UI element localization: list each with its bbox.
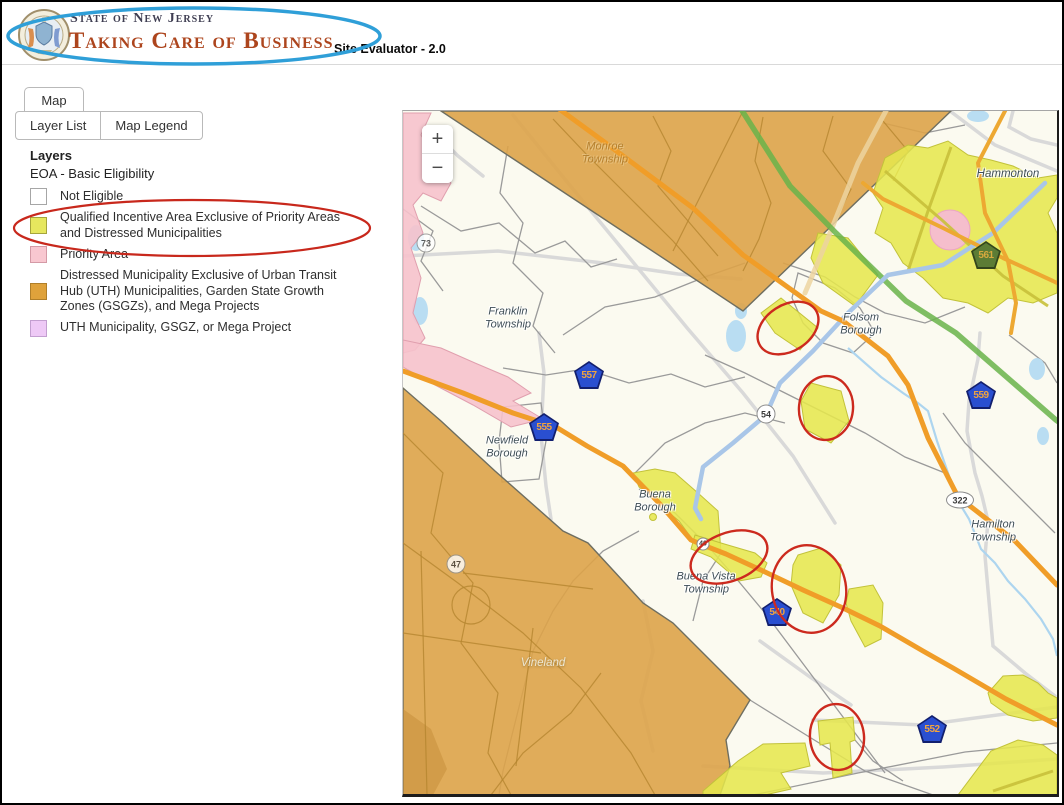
legend-title: Layers bbox=[30, 148, 370, 163]
legend-swatch-yellow bbox=[30, 217, 47, 234]
legend-item-priority-area: Priority Area bbox=[30, 246, 370, 263]
toolbar: Layer List Map Legend bbox=[15, 111, 203, 140]
map-label-newfield-borough: NewfieldBorough bbox=[486, 435, 528, 460]
legend-item-not-eligible: Not Eligible bbox=[30, 188, 370, 205]
legend-item-qualified-incentive-area: Qualified Incentive Area Exclusive of Pr… bbox=[30, 210, 370, 241]
map-label-folsom-borough: FolsomBorough bbox=[840, 312, 882, 337]
legend-swatch-pink bbox=[30, 246, 47, 263]
header-state-line: State of New Jersey bbox=[70, 11, 214, 27]
map-label-hamilton-township: HamiltonTownship bbox=[970, 519, 1016, 544]
app-window: State of New Jersey Taking Care of Busin… bbox=[0, 0, 1064, 805]
map-label-franklin-township: FranklinTownship bbox=[485, 306, 531, 331]
map-zoom-control: + − bbox=[422, 125, 453, 183]
route-shield-322: 322 bbox=[946, 492, 974, 509]
map-label-buena-vista-township: Buena VistaTownship bbox=[676, 571, 735, 596]
map-label-hammonton: Hammonton bbox=[977, 168, 1040, 181]
legend-swatch-orange bbox=[30, 283, 47, 300]
zoom-out-button[interactable]: − bbox=[422, 154, 453, 183]
zoom-in-button[interactable]: + bbox=[422, 125, 453, 154]
legend-panel: Layers EOA - Basic Eligibility Not Eligi… bbox=[30, 148, 370, 342]
route-shield-73: 73 bbox=[417, 234, 436, 253]
legend-swatch-violet bbox=[30, 320, 47, 337]
header: State of New Jersey Taking Care of Busin… bbox=[2, 2, 1062, 65]
legend-item-uth-municipality: UTH Municipality, GSGZ, or Mega Project bbox=[30, 320, 370, 337]
route-shield-40: 40 bbox=[697, 538, 710, 551]
route-shield-54: 54 bbox=[757, 405, 776, 424]
page-title: Taking Care of Business bbox=[69, 28, 333, 54]
layer-list-button[interactable]: Layer List bbox=[15, 111, 101, 140]
legend-item-distressed-municipality: Distressed Municipality Exclusive of Urb… bbox=[30, 268, 370, 315]
map-label-monroe-township: MonroeTownship bbox=[582, 141, 628, 166]
map-legend-button[interactable]: Map Legend bbox=[100, 111, 202, 140]
tab-map[interactable]: Map bbox=[24, 87, 84, 112]
map-label-buena-borough: BuenaBorough bbox=[634, 489, 676, 514]
nj-state-seal bbox=[18, 8, 70, 62]
map-canvas[interactable]: MonroeTownship Hammonton FranklinTownshi… bbox=[402, 110, 1059, 797]
map-label-vineland: Vineland bbox=[521, 657, 566, 670]
route-shield-47: 47 bbox=[447, 555, 466, 574]
legend-subtitle: EOA - Basic Eligibility bbox=[30, 166, 370, 181]
page-subtitle: Site Evaluator - 2.0 bbox=[334, 42, 446, 56]
legend-swatch-white bbox=[30, 188, 47, 205]
